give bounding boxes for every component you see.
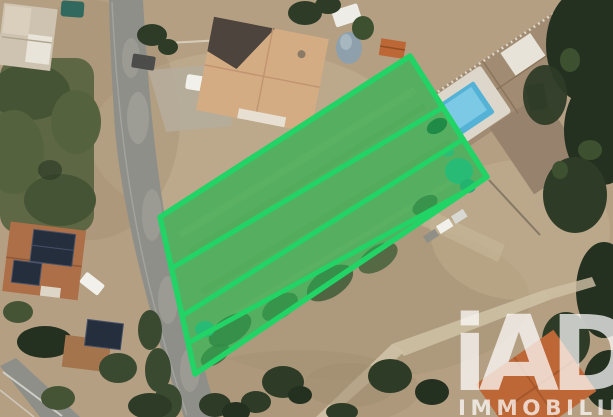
watermark-tagline: IMMOBILIER <box>458 396 613 417</box>
teal-car <box>60 0 84 18</box>
aerial-listing-image: iAD IMMOBILIER <box>0 0 613 417</box>
house-top-left <box>0 3 58 71</box>
house-solar <box>2 222 86 301</box>
watermark: iAD IMMOBILIER <box>452 293 613 417</box>
satellite-scene: iAD IMMOBILIER <box>0 0 613 417</box>
scrub-vegetation <box>0 58 101 233</box>
